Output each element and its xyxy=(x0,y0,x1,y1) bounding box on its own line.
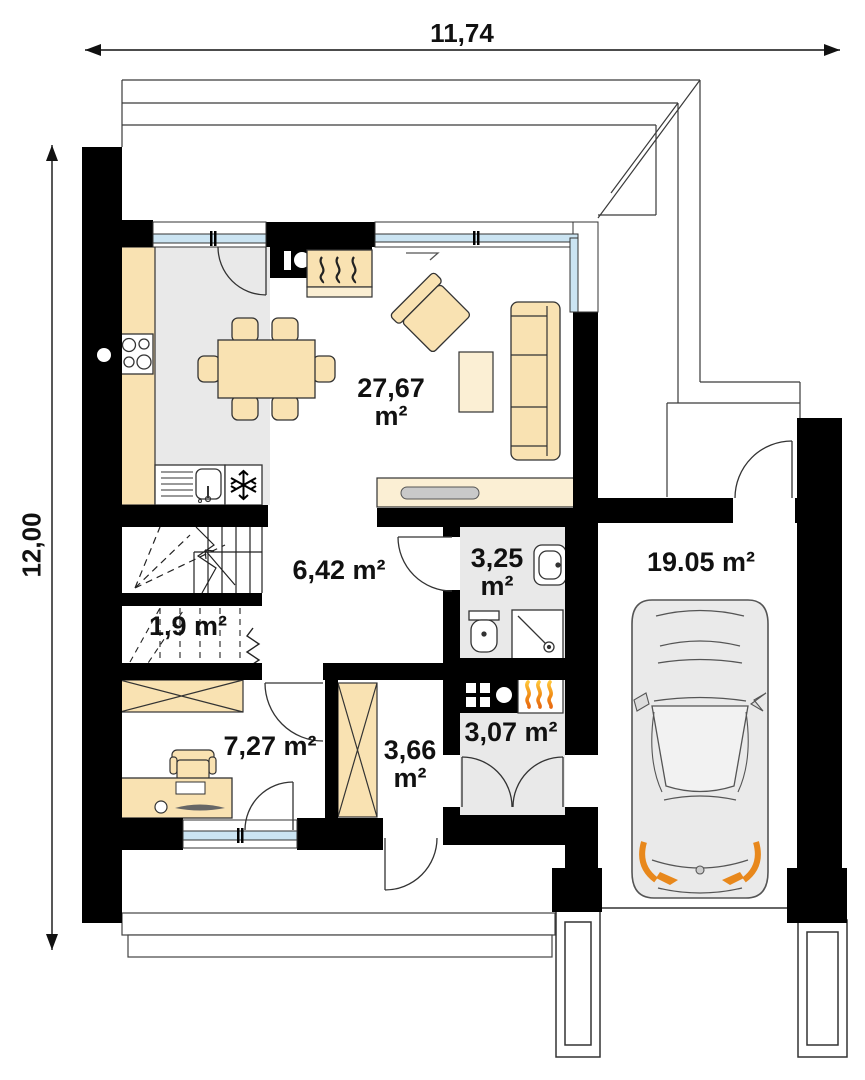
chair xyxy=(313,356,335,382)
living-room-label: 27,67 m² xyxy=(357,374,425,430)
chair xyxy=(232,318,258,342)
cooktop-icon xyxy=(119,334,153,374)
windshield xyxy=(652,706,748,792)
sink-icon xyxy=(155,465,225,505)
wall-tech-bottom xyxy=(443,815,567,845)
bathroom-unit: m² xyxy=(471,572,524,600)
tv-icon xyxy=(401,487,479,499)
dimension-width-label: 11,74 xyxy=(430,18,494,49)
under-stairs-area: 1,9 m² xyxy=(149,612,227,640)
car-icon xyxy=(632,600,768,898)
wall-kitchen-bottom xyxy=(122,505,268,527)
direction-arrow xyxy=(406,253,438,260)
living-room-area: 27,67 xyxy=(357,374,425,402)
vestibule-label: 3,66 m² xyxy=(384,736,437,792)
fridge-snowflake-icon xyxy=(225,465,262,505)
desk-drawer xyxy=(176,782,205,794)
wall-garage-left-upper xyxy=(565,508,598,755)
wall-right-exterior xyxy=(797,418,842,873)
wall-right-living xyxy=(573,312,598,520)
armchair xyxy=(390,272,474,356)
floor-plan-drawing xyxy=(0,0,865,1080)
living-room-unit: m² xyxy=(357,402,425,430)
office-label: 7,27 m² xyxy=(223,732,316,760)
wall-tech-left-upper xyxy=(443,680,460,755)
desk-lamp-icon xyxy=(155,801,167,813)
wall-left-exterior xyxy=(82,147,122,923)
garage-side-door xyxy=(735,441,792,498)
bathroom-area: 3,25 xyxy=(471,544,524,572)
office-area: 7,27 m² xyxy=(223,732,316,760)
hearth xyxy=(307,287,372,297)
chair xyxy=(198,356,220,382)
wall-hall-bath-top xyxy=(377,508,565,527)
chair xyxy=(232,396,258,420)
garage-pillar-left-inner xyxy=(565,922,591,1045)
vestibule-unit: m² xyxy=(384,764,437,792)
kitchen-counter xyxy=(118,247,155,505)
desk xyxy=(118,778,232,818)
chair xyxy=(272,396,298,420)
wall-hall-bottom xyxy=(323,663,443,680)
garage-label: 19.05 m² xyxy=(647,548,755,576)
washbasin-icon xyxy=(534,545,566,585)
desk-chair xyxy=(170,750,216,780)
wall-storage-bottom xyxy=(112,663,262,680)
office-window xyxy=(183,820,297,848)
coffee-table xyxy=(459,352,493,412)
technical-label: 3,07 m² xyxy=(464,718,557,746)
sofa xyxy=(511,302,560,460)
toilet-icon xyxy=(469,611,499,652)
wall-stair-divider xyxy=(112,593,262,606)
office-furniture xyxy=(118,750,232,818)
hall-label: 6,42 m² xyxy=(292,556,385,584)
garage-elements xyxy=(556,908,847,1057)
wall-bath-left-lower xyxy=(443,590,460,658)
step-strip xyxy=(122,913,555,935)
shower-icon xyxy=(512,610,563,660)
garage-pillar-right-inner xyxy=(807,932,838,1045)
wardrobe-office xyxy=(120,680,243,712)
wall-garage-top-left xyxy=(598,498,733,523)
wall-top-mid xyxy=(266,222,274,247)
vestibule-area: 3,66 xyxy=(384,736,437,764)
kitchen-window xyxy=(153,222,266,247)
wall-bath-left-upper xyxy=(443,527,460,537)
wall-office-bottom-right xyxy=(297,818,383,850)
wall-vent xyxy=(97,348,111,362)
wall-bath-bottom xyxy=(443,658,565,680)
garage-area: 19.05 m² xyxy=(647,548,755,576)
technical-fixtures xyxy=(443,677,563,713)
chair xyxy=(272,318,298,342)
entrance-door xyxy=(385,838,437,890)
hall-area: 6,42 m² xyxy=(292,556,385,584)
bathroom-door xyxy=(398,537,452,591)
technical-area: 3,07 m² xyxy=(464,718,557,746)
corner-window xyxy=(570,238,578,312)
wall-top-stub xyxy=(122,220,153,247)
wall-garage-step xyxy=(552,868,602,912)
terrace-steps xyxy=(122,913,555,957)
wardrobe-vestibule xyxy=(338,683,377,817)
fireplace xyxy=(270,222,372,297)
stairs xyxy=(135,527,262,593)
floor-plan: 11,74 12,00 27,67 m² 6,42 m² 3,25 m² 1,9… xyxy=(0,0,865,1080)
bathroom-label: 3,25 m² xyxy=(471,544,524,600)
under-stairs-label: 1,9 m² xyxy=(149,612,227,640)
wall-right-step xyxy=(787,868,847,923)
tv-bench xyxy=(377,478,585,507)
furnace-icon xyxy=(518,677,563,713)
wall-office-bottom-left xyxy=(122,818,183,850)
wall-vestibule-left xyxy=(325,680,338,823)
dimension-height-label: 12,00 xyxy=(17,512,48,577)
step-strip xyxy=(128,935,552,957)
dining-table xyxy=(218,340,315,398)
chimney-vent xyxy=(284,251,291,270)
